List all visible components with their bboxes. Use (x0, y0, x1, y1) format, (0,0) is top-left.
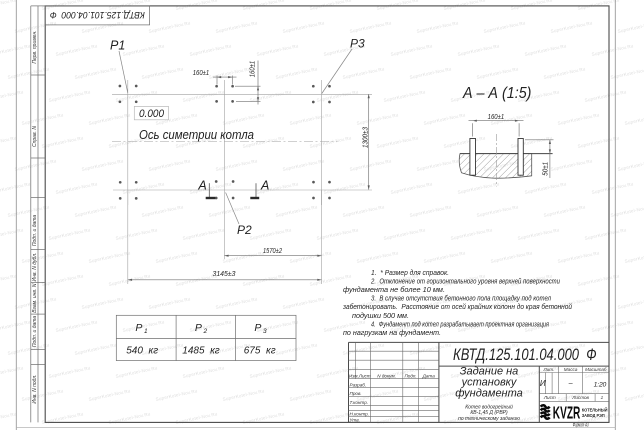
svg-text:SuperKotel-Nov.Ru: SuperKotel-Nov.Ru (74, 204, 117, 218)
svg-text:–: – (568, 378, 574, 387)
svg-text:SuperKotel-Nov.Ru: SuperKotel-Nov.Ru (215, 20, 258, 34)
svg-text:Лист: Лист (543, 395, 556, 400)
svg-text:Масса: Масса (564, 367, 578, 372)
svg-text:Масштаб: Масштаб (585, 367, 607, 372)
svg-text:SuperKotel-Nov.Ru: SuperKotel-Nov.Ru (550, 20, 593, 34)
svg-text:SuperKotel-Nov.Ru: SuperKotel-Nov.Ru (510, 135, 553, 149)
svg-text:SuperKotel-Nov.Ru: SuperKotel-Nov.Ru (215, 158, 258, 172)
svg-text:Р3: Р3 (350, 37, 365, 51)
svg-text:Формат А3: Формат А3 (573, 423, 589, 429)
svg-text:SuperKotel-Nov.Ru: SuperKotel-Nov.Ru (122, 181, 165, 195)
svg-text:SuperKotel-Nov.Ru: SuperKotel-Nov.Ru (390, 43, 433, 57)
svg-text:SuperKotel-Nov.Ru: SuperKotel-Nov.Ru (543, 204, 586, 218)
svg-text:SuperKotel-Nov.Ru: SuperKotel-Nov.Ru (81, 158, 124, 172)
svg-text:SuperKotel-Nov.Ru: SuperKotel-Nov.Ru (617, 158, 644, 172)
svg-text:подушки 500 мм.: подушки 500 мм. (352, 312, 409, 320)
svg-text:Листов: Листов (571, 395, 589, 400)
svg-text:SuperKotel-Nov.Ru: SuperKotel-Nov.Ru (282, 296, 325, 310)
svg-text:SuperKotel-Nov.Ru: SuperKotel-Nov.Ru (222, 112, 265, 126)
svg-text:фундамента не более 10 мм.: фундамента не более 10 мм. (343, 286, 445, 294)
svg-text:Ось симетрии котла: Ось симетрии котла (139, 127, 254, 142)
svg-text:Т.контр.: Т.контр. (350, 400, 369, 405)
svg-text:Р3: Р3 (254, 322, 267, 335)
svg-text:SuperKotel-Nov.Ru: SuperKotel-Nov.Ru (122, 43, 165, 57)
svg-text:SuperKotel-Nov.Ru: SuperKotel-Nov.Ru (21, 112, 64, 126)
svg-text:SuperKotel-Nov.Ru: SuperKotel-Nov.Ru (48, 227, 91, 241)
svg-text:Изм.Лист: Изм.Лист (349, 373, 371, 378)
svg-text:SuperKotel-Nov.Ru: SuperKotel-Nov.Ru (584, 89, 627, 103)
svg-text:SuperKotel-Nov.Ru: SuperKotel-Nov.Ru (155, 250, 198, 264)
svg-text:Н.контр.: Н.контр. (350, 412, 369, 417)
svg-text:SuperKotel-Nov.Ru: SuperKotel-Nov.Ru (141, 204, 184, 218)
svg-text:Перв. примен.: Перв. примен. (32, 30, 38, 63)
svg-text:SuperKotel-Nov.Ru: SuperKotel-Nov.Ru (215, 296, 258, 310)
svg-text:SuperKotel-Nov.Ru: SuperKotel-Nov.Ru (249, 365, 292, 379)
svg-text:SuperKotel-Nov.Ru: SuperKotel-Nov.Ru (624, 112, 644, 126)
svg-text:3. В случае отсутствия бетонн: 3. В случае отсутствия бетонного пола пл… (371, 295, 551, 303)
svg-text:SuperKotel-Nov.Ru: SuperKotel-Nov.Ru (282, 158, 325, 172)
svg-text:Подп. и дата: Подп. и дата (32, 316, 38, 348)
svg-text:по нагрузкам на фундамент.: по нагрузкам на фундамент. (343, 329, 441, 337)
svg-text:SuperKotel-Nov.Ru: SuperKotel-Nov.Ru (115, 365, 158, 379)
svg-text:SuperKotel-Nov.Ru: SuperKotel-Nov.Ru (624, 388, 644, 402)
svg-text:SuperKotel-Nov.Ru: SuperKotel-Nov.Ru (0, 43, 31, 57)
svg-text:КВТД.125.101.04.000 Ф: КВТД.125.101.04.000 Ф (50, 10, 145, 20)
svg-text:SuperKotel-Nov.Ru: SuperKotel-Nov.Ru (524, 43, 567, 57)
svg-text:SuperKotel-Nov.Ru: SuperKotel-Nov.Ru (483, 20, 526, 34)
svg-text:SuperKotel-Nov.Ru: SuperKotel-Nov.Ru (416, 20, 459, 34)
svg-text:SuperKotel-Nov.Ru: SuperKotel-Nov.Ru (41, 135, 84, 149)
svg-text:SuperKotel-Nov.Ru: SuperKotel-Nov.Ru (423, 112, 466, 126)
svg-text:SuperKotel-Nov.Ru: SuperKotel-Nov.Ru (148, 20, 191, 34)
svg-text:SuperKotel-Nov.Ru: SuperKotel-Nov.Ru (409, 342, 452, 356)
svg-text:SuperKotel-Nov.Ru: SuperKotel-Nov.Ru (21, 388, 64, 402)
svg-text:SuperKotel-Nov.Ru: SuperKotel-Nov.Ru (443, 135, 486, 149)
svg-text:SuperKotel-Nov.Ru: SuperKotel-Nov.Ru (88, 112, 131, 126)
svg-text:N докум.: N докум. (377, 373, 396, 378)
svg-text:SuperKotel-Nov.Ru: SuperKotel-Nov.Ru (88, 388, 131, 402)
svg-text:Разраб.: Разраб. (350, 382, 367, 387)
svg-text:SuperKotel-Nov.Ru: SuperKotel-Nov.Ru (148, 296, 191, 310)
svg-text:SuperKotel-Nov.Ru: SuperKotel-Nov.Ru (289, 112, 332, 126)
svg-text:SuperKotel-Nov.Ru: SuperKotel-Nov.Ru (0, 89, 24, 103)
svg-text:540 кг: 540 кг (126, 345, 158, 356)
svg-text:SuperKotel-Nov.Ru: SuperKotel-Nov.Ru (457, 43, 500, 57)
svg-text:SuperKotel-Nov.Ru: SuperKotel-Nov.Ru (48, 365, 91, 379)
svg-text:SuperKotel-Nov.Ru: SuperKotel-Nov.Ru (222, 388, 265, 402)
svg-text:SuperKotel-Nov.Ru: SuperKotel-Nov.Ru (182, 227, 225, 241)
svg-text:А – А (1:5): А – А (1:5) (462, 85, 531, 102)
svg-text:SuperKotel-Nov.Ru: SuperKotel-Nov.Ru (275, 204, 318, 218)
svg-text:SuperKotel-Nov.Ru: SuperKotel-Nov.Ru (155, 388, 198, 402)
svg-text:SuperKotel-Nov.Ru: SuperKotel-Nov.Ru (208, 66, 251, 80)
svg-text:SuperKotel-Nov.Ru: SuperKotel-Nov.Ru (41, 273, 84, 287)
svg-text:SuperKotel-Nov.Ru: SuperKotel-Nov.Ru (316, 227, 359, 241)
svg-text:SuperKotel-Nov.Ru: SuperKotel-Nov.Ru (208, 204, 251, 218)
svg-text:SuperKotel-Nov.Ru: SuperKotel-Nov.Ru (289, 250, 332, 264)
svg-text:SuperKotel-Nov.Ru: SuperKotel-Nov.Ru (81, 20, 124, 34)
svg-text:SuperKotel-Nov.Ru: SuperKotel-Nov.Ru (48, 89, 91, 103)
svg-text:И: И (540, 379, 546, 388)
svg-text:SuperKotel-Nov.Ru: SuperKotel-Nov.Ru (476, 204, 519, 218)
svg-text:А: А (197, 178, 206, 192)
svg-text:SuperKotel-Nov.Ru: SuperKotel-Nov.Ru (14, 158, 57, 172)
svg-text:SuperKotel-Nov.Ru: SuperKotel-Nov.Ru (88, 250, 131, 264)
svg-text:SuperKotel-Nov.Ru: SuperKotel-Nov.Ru (409, 204, 452, 218)
svg-text:SuperKotel-Nov.Ru: SuperKotel-Nov.Ru (74, 342, 117, 356)
svg-text:Взам. инв. N: Взам. инв. N (32, 283, 38, 313)
svg-text:SuperKotel-Nov.Ru: SuperKotel-Nov.Ru (0, 411, 17, 425)
svg-text:SuperKotel-Nov.Ru: SuperKotel-Nov.Ru (416, 158, 459, 172)
svg-text:SuperKotel-Nov.Ru: SuperKotel-Nov.Ru (275, 66, 318, 80)
svg-text:SuperKotel-Nov.Ru: SuperKotel-Nov.Ru (182, 89, 225, 103)
svg-text:SuperKotel-Nov.Ru: SuperKotel-Nov.Ru (0, 135, 17, 149)
svg-text:SuperKotel-Nov.Ru: SuperKotel-Nov.Ru (349, 20, 392, 34)
svg-text:2. Отклонение от горизонтальн: 2. Отклонение от горизонтального уровня … (370, 278, 560, 286)
svg-text:SuperKotel-Nov.Ru: SuperKotel-Nov.Ru (115, 227, 158, 241)
svg-text:SuperKotel-Nov.Ru: SuperKotel-Nov.Ru (0, 319, 31, 333)
svg-text:SuperKotel-Nov.Ru: SuperKotel-Nov.Ru (189, 43, 232, 57)
svg-text:SuperKotel-Nov.Ru: SuperKotel-Nov.Ru (557, 112, 600, 126)
svg-text:SuperKotel-Nov.Ru: SuperKotel-Nov.Ru (7, 204, 50, 218)
svg-text:Утв.: Утв. (350, 417, 360, 422)
svg-text:SuperKotel-Nov.Ru: SuperKotel-Nov.Ru (81, 296, 124, 310)
svg-text:SuperKotel-Nov.Ru: SuperKotel-Nov.Ru (591, 43, 634, 57)
svg-text:фундамента: фундамента (455, 387, 523, 399)
svg-text:1485 кг: 1485 кг (182, 345, 220, 356)
svg-text:забетонировать. Расстояние от: забетонировать. Расстояние от осей крайн… (342, 303, 572, 311)
svg-text:1300±3: 1300±3 (362, 127, 369, 148)
svg-text:50±1: 50±1 (542, 162, 549, 176)
svg-text:SuperKotel-Nov.Ru: SuperKotel-Nov.Ru (0, 365, 24, 379)
svg-text:SuperKotel-Nov.Ru: SuperKotel-Nov.Ru (376, 135, 419, 149)
svg-text:Подп.: Подп. (404, 373, 416, 378)
svg-text:SuperKotel-Nov.Ru: SuperKotel-Nov.Ru (584, 227, 627, 241)
svg-text:160±1: 160±1 (250, 61, 257, 78)
svg-text:SuperKotel-Nov.Ru: SuperKotel-Nov.Ru (356, 250, 399, 264)
svg-text:по техническому заданию: по техническому заданию (458, 416, 520, 422)
svg-text:А: А (260, 178, 269, 192)
svg-text:SuperKotel-Nov.Ru: SuperKotel-Nov.Ru (0, 273, 17, 287)
svg-text:0.000: 0.000 (139, 108, 165, 120)
svg-text:SuperKotel-Nov.Ru: SuperKotel-Nov.Ru (0, 181, 31, 195)
svg-text:SuperKotel-Nov.Ru: SuperKotel-Nov.Ru (182, 365, 225, 379)
svg-text:SuperKotel-Nov.Ru: SuperKotel-Nov.Ru (356, 112, 399, 126)
svg-text:KVZR: KVZR (553, 403, 581, 423)
svg-text:SuperKotel-Nov.Ru: SuperKotel-Nov.Ru (457, 181, 500, 195)
svg-text:SuperKotel-Nov.Ru: SuperKotel-Nov.Ru (256, 43, 299, 57)
svg-text:160±1: 160±1 (193, 70, 210, 77)
svg-text:SuperKotel-Nov.Ru: SuperKotel-Nov.Ru (289, 388, 332, 402)
svg-text:SuperKotel-Nov.Ru: SuperKotel-Nov.Ru (476, 66, 519, 80)
svg-text:SuperKotel-Nov.Ru: SuperKotel-Nov.Ru (309, 135, 352, 149)
svg-text:Пров.: Пров. (350, 391, 362, 396)
svg-text:SuperKotel-Nov.Ru: SuperKotel-Nov.Ru (342, 204, 385, 218)
svg-text:SuperKotel-Nov.Ru: SuperKotel-Nov.Ru (222, 250, 265, 264)
svg-text:1570±2: 1570±2 (263, 248, 282, 255)
svg-text:Инв. N дубл.: Инв. N дубл. (32, 253, 38, 282)
svg-text:SuperKotel-Nov.Ru: SuperKotel-Nov.Ru (0, 227, 24, 241)
svg-text:SuperKotel-Nov.Ru: SuperKotel-Nov.Ru (390, 181, 433, 195)
svg-text:Р1: Р1 (110, 39, 125, 53)
svg-text:SuperKotel-Nov.Ru: SuperKotel-Nov.Ru (55, 319, 98, 333)
svg-text:SuperKotel-Nov.Ru: SuperKotel-Nov.Ru (550, 158, 593, 172)
svg-text:SuperKotel-Nov.Ru: SuperKotel-Nov.Ru (282, 20, 325, 34)
svg-text:Р2: Р2 (237, 223, 252, 237)
svg-text:КОТЕЛЬНЫЙ: КОТЕЛЬНЫЙ (582, 407, 608, 412)
svg-text:SuperKotel-Nov.Ru: SuperKotel-Nov.Ru (141, 66, 184, 80)
svg-text:SuperKotel-Nov.Ru: SuperKotel-Nov.Ru (617, 296, 644, 310)
svg-text:SuperKotel-Nov.Ru: SuperKotel-Nov.Ru (21, 250, 64, 264)
svg-text:SuperKotel-Nov.Ru: SuperKotel-Nov.Ru (74, 66, 117, 80)
svg-text:Дата: Дата (422, 373, 436, 378)
svg-text:SuperKotel-Nov.Ru: SuperKotel-Nov.Ru (7, 66, 50, 80)
svg-text:675 кг: 675 кг (244, 345, 276, 356)
svg-text:SuperKotel-Nov.Ru: SuperKotel-Nov.Ru (577, 273, 620, 287)
svg-text:SuperKotel-Nov.Ru: SuperKotel-Nov.Ru (543, 66, 586, 80)
svg-text:SuperKotel-Nov.Ru: SuperKotel-Nov.Ru (490, 250, 533, 264)
svg-text:SuperKotel-Nov.Ru: SuperKotel-Nov.Ru (249, 227, 292, 241)
svg-text:SuperKotel-Nov.Ru: SuperKotel-Nov.Ru (7, 342, 50, 356)
svg-text:SuperKotel-Nov.Ru: SuperKotel-Nov.Ru (450, 227, 493, 241)
svg-text:SuperKotel-Nov.Ru: SuperKotel-Nov.Ru (349, 158, 392, 172)
svg-text:1. * Размер для справок.: 1. * Размер для справок. (371, 269, 449, 277)
svg-text:SuperKotel-Nov.Ru: SuperKotel-Nov.Ru (423, 250, 466, 264)
svg-text:SuperKotel-Nov.Ru: SuperKotel-Nov.Ru (249, 89, 292, 103)
svg-text:160±1: 160±1 (488, 114, 505, 121)
svg-text:SuperKotel-Nov.Ru: SuperKotel-Nov.Ru (0, 0, 17, 11)
svg-text:SuperKotel-Nov.Ru: SuperKotel-Nov.Ru (617, 20, 644, 34)
svg-text:SuperKotel-Nov.Ru: SuperKotel-Nov.Ru (591, 319, 634, 333)
svg-text:4. Фундамент под котел разраб: 4. Фундамент под котел разрабатывает про… (371, 321, 549, 329)
svg-text:SuperKotel-Nov.Ru: SuperKotel-Nov.Ru (383, 89, 426, 103)
svg-text:SuperKotel-Nov.Ru: SuperKotel-Nov.Ru (409, 66, 452, 80)
svg-text:SuperKotel-Nov.Ru: SuperKotel-Nov.Ru (577, 135, 620, 149)
svg-text:КВТД.125.101.04.000 Ф: КВТД.125.101.04.000 Ф (453, 346, 597, 364)
svg-text:Подп. и дата: Подп. и дата (32, 215, 38, 247)
svg-text:SuperKotel-Nov.Ru: SuperKotel-Nov.Ru (316, 89, 359, 103)
svg-text:SuperKotel-Nov.Ru: SuperKotel-Nov.Ru (55, 43, 98, 57)
svg-text:SuperKotel-Nov.Ru: SuperKotel-Nov.Ru (624, 250, 644, 264)
svg-text:Справ. N: Справ. N (32, 126, 38, 147)
svg-text:SuperKotel-Nov.Ru: SuperKotel-Nov.Ru (557, 250, 600, 264)
svg-text:Лит.: Лит. (543, 367, 555, 372)
svg-text:SuperKotel-Nov.Ru: SuperKotel-Nov.Ru (148, 158, 191, 172)
svg-text:ЗАВОД РЭП: ЗАВОД РЭП (582, 413, 605, 418)
svg-text:SuperKotel-Nov.Ru: SuperKotel-Nov.Ru (591, 181, 634, 195)
svg-text:Инв. N подл.: Инв. N подл. (32, 374, 38, 403)
svg-text:SuperKotel-Nov.Ru: SuperKotel-Nov.Ru (275, 342, 318, 356)
svg-text:SuperKotel-Nov.Ru: SuperKotel-Nov.Ru (55, 181, 98, 195)
svg-text:SuperKotel-Nov.Ru: SuperKotel-Nov.Ru (517, 227, 560, 241)
svg-text:SuperKotel-Nov.Ru: SuperKotel-Nov.Ru (383, 227, 426, 241)
svg-text:SuperKotel-Nov.Ru: SuperKotel-Nov.Ru (524, 181, 567, 195)
svg-text:1: 1 (601, 395, 604, 400)
svg-text:3145±3: 3145±3 (213, 271, 236, 278)
svg-text:SuperKotel-Nov.Ru: SuperKotel-Nov.Ru (342, 66, 385, 80)
svg-text:1:20: 1:20 (594, 381, 607, 388)
